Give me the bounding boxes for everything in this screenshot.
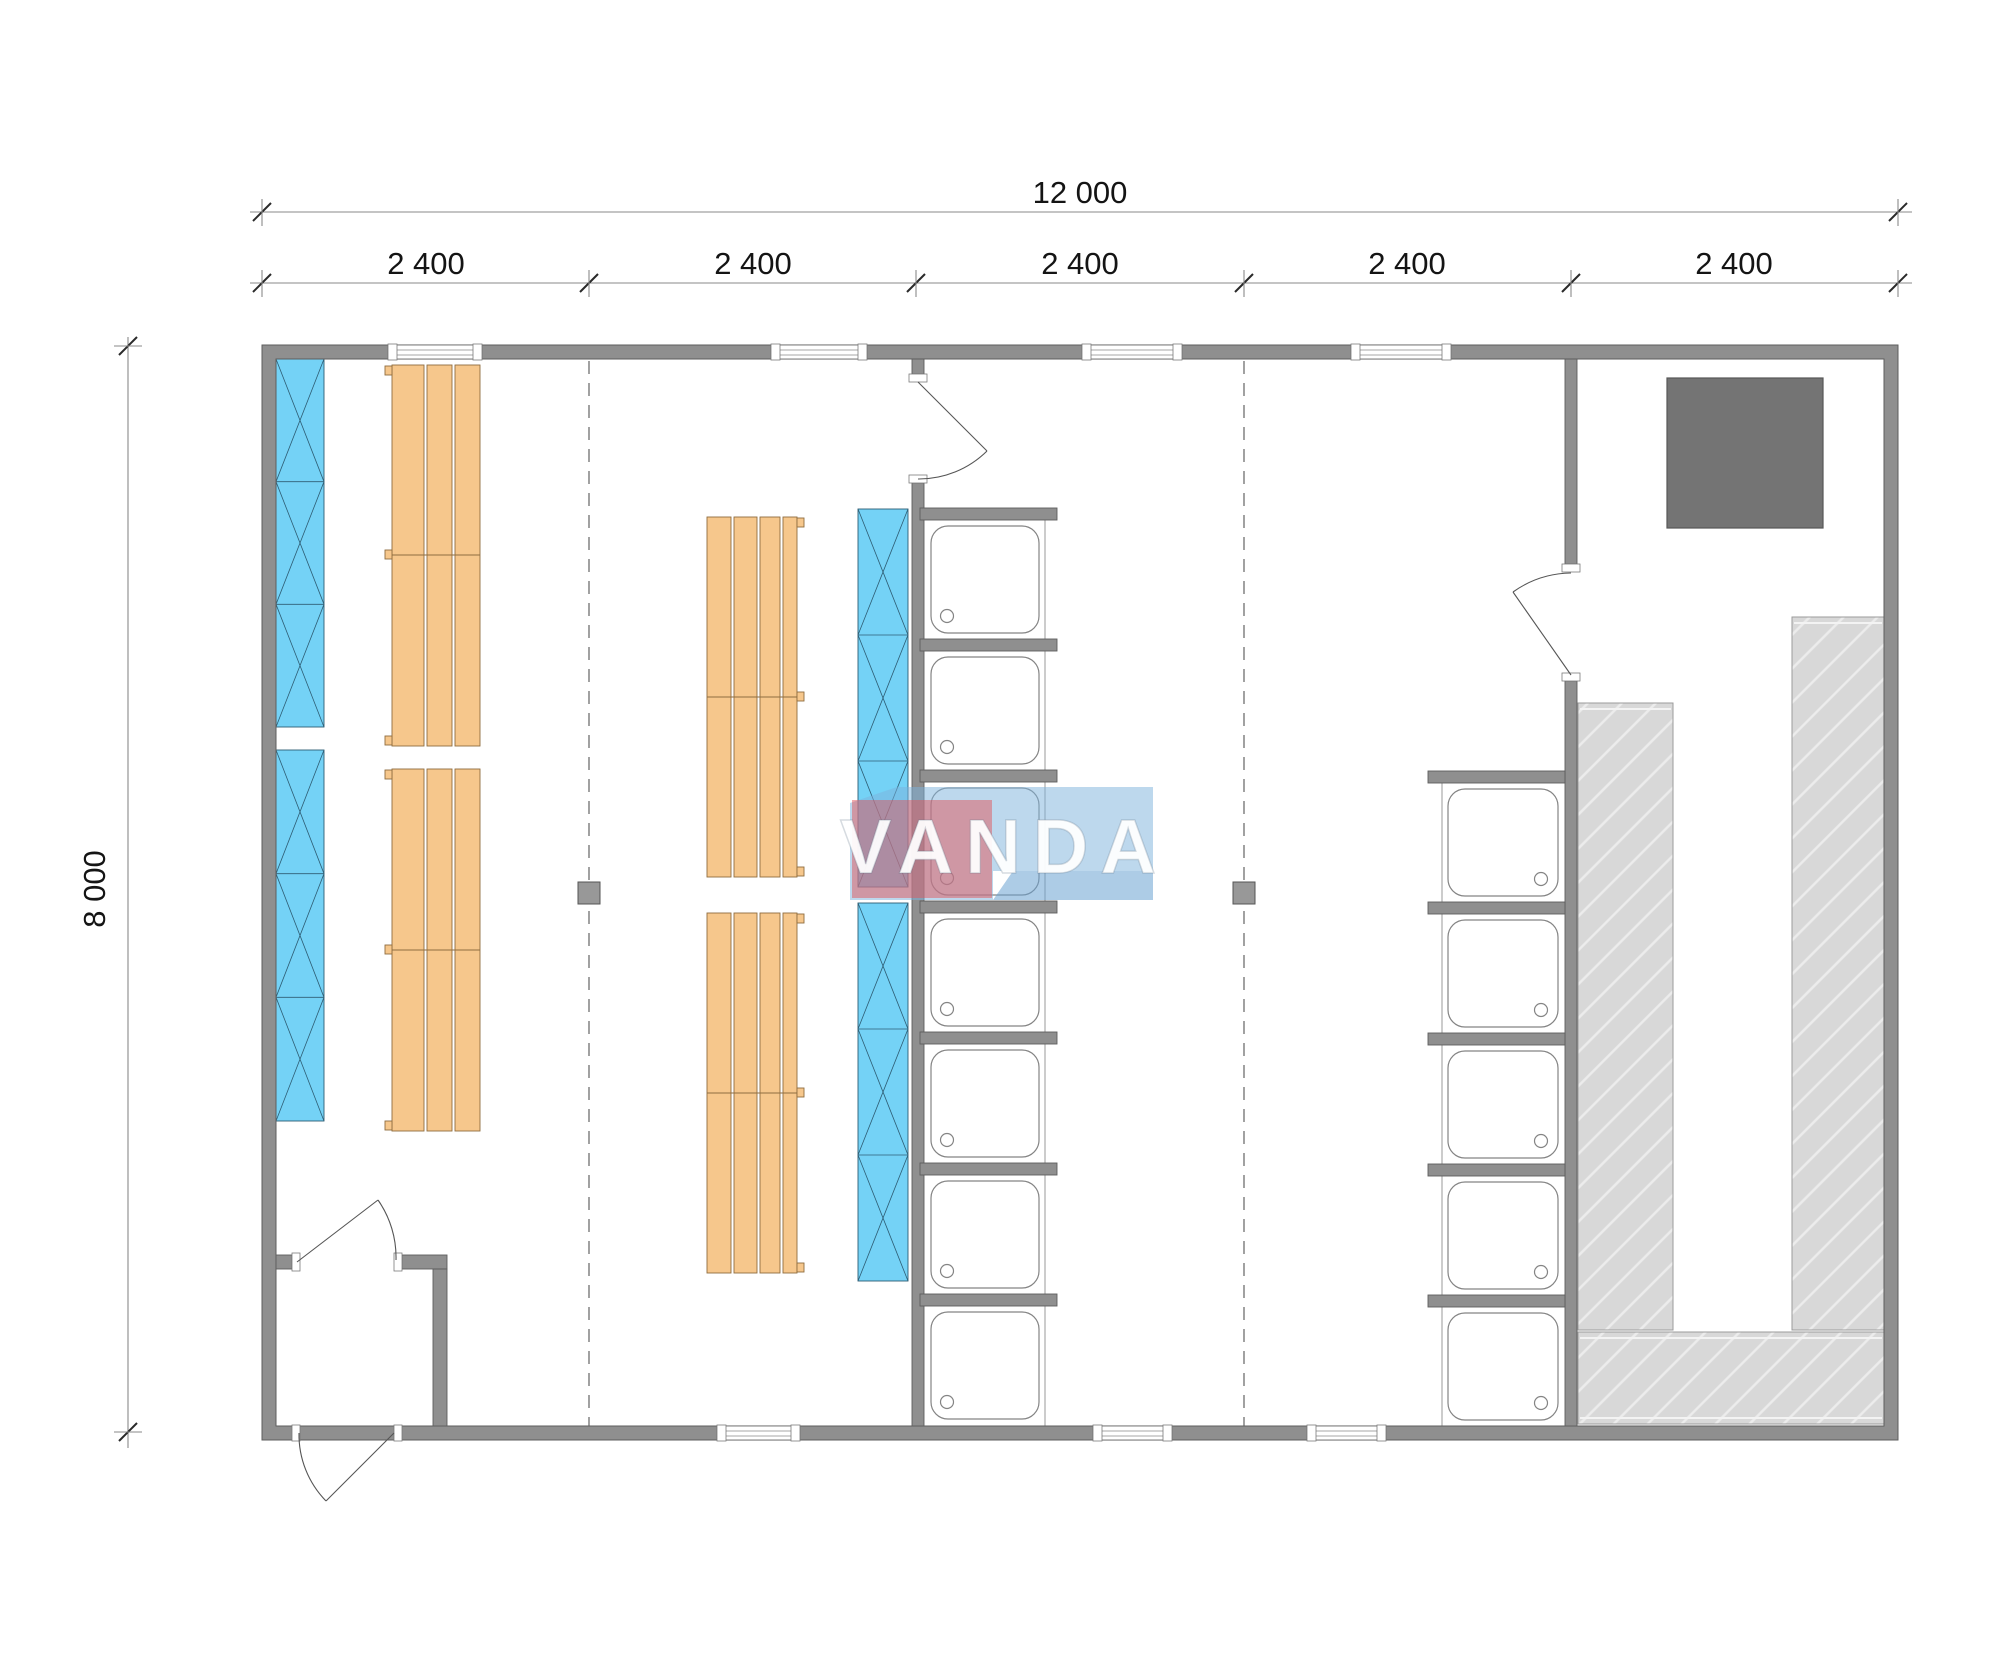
door-right-partition [1513, 564, 1580, 681]
floor-plan-canvas: 12 000 2 400 2 400 2 400 2 400 2 400 8 0… [0, 0, 2000, 1669]
window-top-2 [771, 344, 867, 360]
door-center-partition [909, 374, 987, 483]
sauna-benches [385, 365, 804, 1273]
door-vestibule-interior [292, 1200, 402, 1271]
module-width-label-4: 2 400 [1368, 246, 1446, 281]
dimension-top-modules: 2 400 2 400 2 400 2 400 2 400 [250, 246, 1912, 297]
module-width-label-2: 2 400 [714, 246, 792, 281]
hatch-band-bottom [1578, 1332, 1884, 1424]
module-width-label-3: 2 400 [1041, 246, 1119, 281]
glazing-section-4 [858, 903, 908, 1281]
bench-group-2-upper [707, 517, 804, 877]
module-width-label-1: 2 400 [387, 246, 465, 281]
glazing-section-1 [276, 359, 324, 727]
module-width-label-5: 2 400 [1695, 246, 1773, 281]
overall-height-label: 8 000 [77, 850, 112, 928]
dimension-top-overall: 12 000 [250, 175, 1912, 226]
vestibule-wall-vertical [433, 1269, 447, 1426]
logo-text: VANDA [840, 804, 1168, 890]
bench-group-1-lower [385, 769, 480, 1131]
bench-group-2-lower [707, 913, 804, 1273]
partition-wall-center-lower [912, 483, 924, 1426]
window-top-3 [1082, 344, 1182, 360]
window-bottom-1 [717, 1425, 800, 1441]
bench-group-1-upper [385, 365, 480, 746]
window-top-1 [388, 344, 482, 360]
glazing-section-2 [276, 750, 324, 1121]
floor-plan-page: 12 000 2 400 2 400 2 400 2 400 2 400 8 0… [0, 0, 2000, 1669]
walkway-hatch [1578, 617, 1884, 1424]
vestibule-wall-right-seg [402, 1255, 447, 1269]
glazing-panels [276, 359, 908, 1281]
dimension-left-height: 8 000 [77, 337, 142, 1448]
partition-wall-right-lower [1565, 681, 1577, 1426]
overall-width-label: 12 000 [1033, 175, 1128, 210]
window-bottom-2 [1093, 1425, 1172, 1441]
hatch-strip-right [1792, 617, 1884, 1330]
partition-wall-center [912, 359, 924, 374]
stove [1667, 378, 1823, 528]
partition-wall-right [1565, 359, 1577, 564]
hatch-strip-left [1578, 703, 1673, 1330]
structural-post-2 [1233, 882, 1255, 904]
structural-post-1 [578, 882, 600, 904]
shower-stalls-right [1442, 783, 1558, 1426]
vestibule-wall [276, 1255, 292, 1269]
window-top-4 [1351, 344, 1451, 360]
window-bottom-3 [1307, 1425, 1386, 1441]
shower-stalls-center [931, 520, 1045, 1426]
vanda-watermark: VANDA [840, 787, 1168, 900]
